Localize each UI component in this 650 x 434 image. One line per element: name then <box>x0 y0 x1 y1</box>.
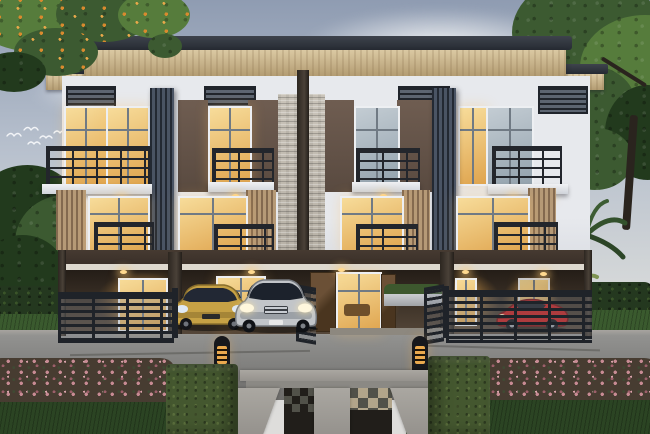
porch-downlight <box>248 270 255 274</box>
gravel-paver-bed <box>284 388 316 414</box>
boxwood-hedge-cube-right <box>428 356 490 434</box>
porch-downlight <box>120 270 127 274</box>
walkway-step <box>246 381 430 388</box>
walkway-landing <box>240 370 436 381</box>
checker-paver-patch <box>348 388 392 412</box>
boxwood-hedge-cube-left <box>166 364 238 434</box>
porch-downlight <box>338 268 345 272</box>
parapet-grille <box>538 86 588 114</box>
open-gate-leaf <box>424 284 444 345</box>
window-lit <box>458 106 488 186</box>
gravel-bed <box>348 410 392 434</box>
louver-fin <box>432 88 456 252</box>
silver-sedan <box>232 278 320 334</box>
leaf-cluster <box>148 34 182 58</box>
dusk-townhouse-rendering <box>0 0 650 434</box>
front-fence-right <box>446 290 592 343</box>
porch-downlight <box>540 272 547 276</box>
walkway-ramp-center <box>314 388 350 434</box>
gravel-bed <box>284 412 316 434</box>
gate-post <box>443 286 449 338</box>
gate-post <box>172 288 178 338</box>
bollard-lamp-window <box>217 346 227 364</box>
balcony-railing <box>492 146 562 189</box>
front-fence-left <box>58 292 174 343</box>
wood-louver-screen <box>56 190 86 250</box>
porch-downlight <box>462 270 469 274</box>
entry-glass-door-lit <box>336 272 382 334</box>
facade-panel <box>178 100 208 192</box>
facade-panel <box>325 100 354 192</box>
balcony-railing <box>46 146 150 189</box>
interior-sofa-silhouette <box>344 304 370 316</box>
bollard-lamp-window <box>415 346 425 364</box>
